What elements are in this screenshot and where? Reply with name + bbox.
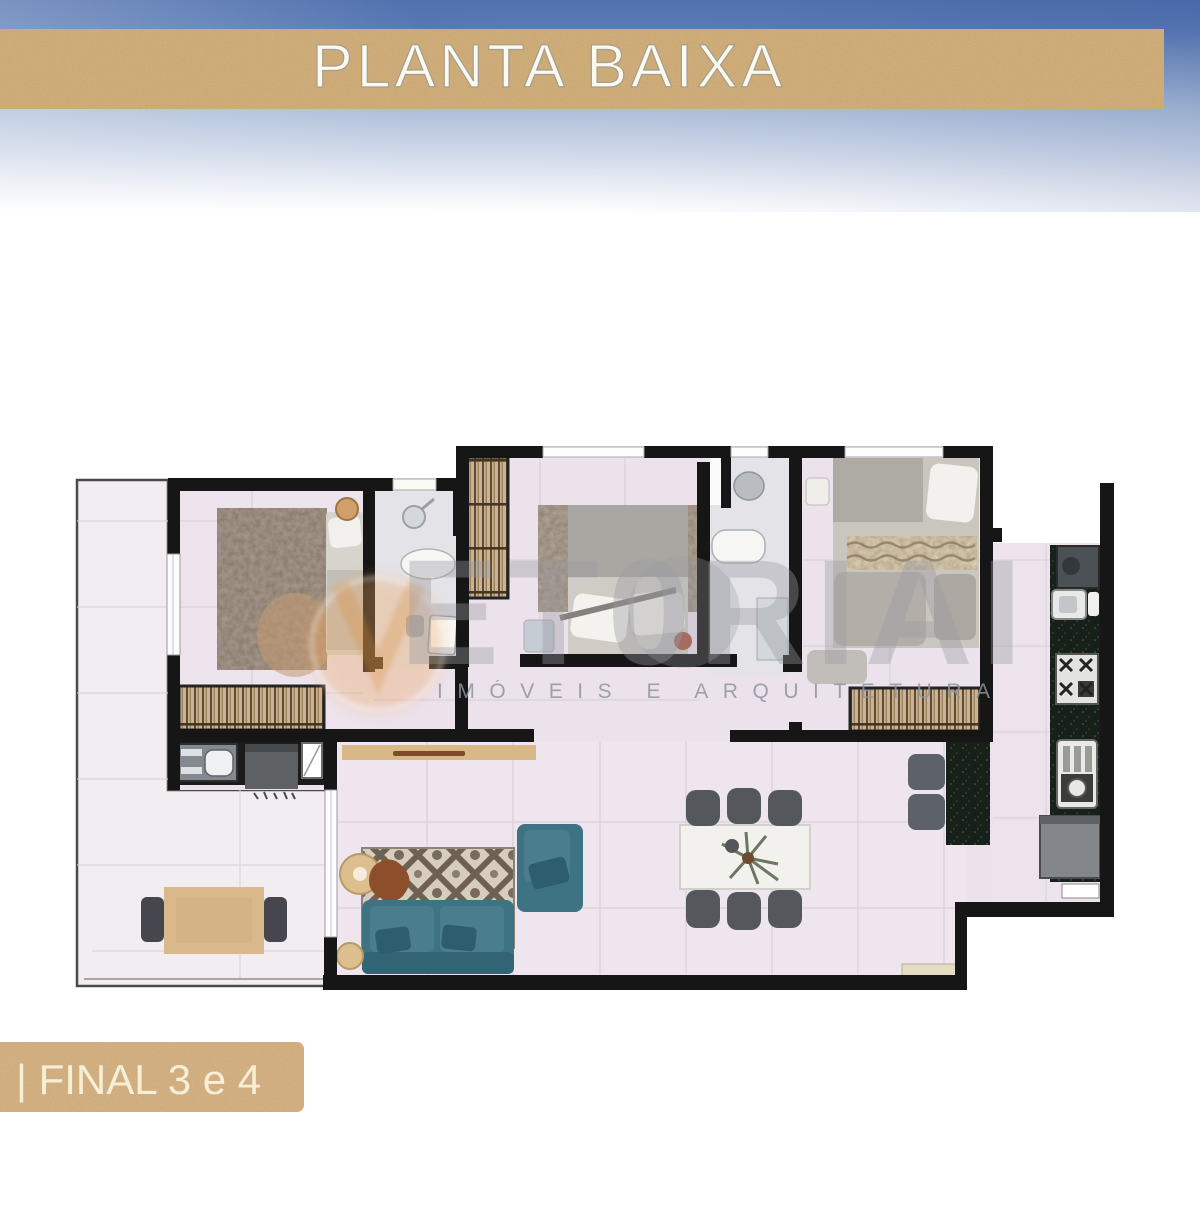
svg-text:PLANTA BAIXA: PLANTA BAIXA bbox=[312, 32, 786, 100]
svg-text:| FINAL 3 e 4: | FINAL 3 e 4 bbox=[16, 1056, 261, 1103]
svg-text:ET0RIAI: ET0RIAI bbox=[399, 528, 1030, 696]
